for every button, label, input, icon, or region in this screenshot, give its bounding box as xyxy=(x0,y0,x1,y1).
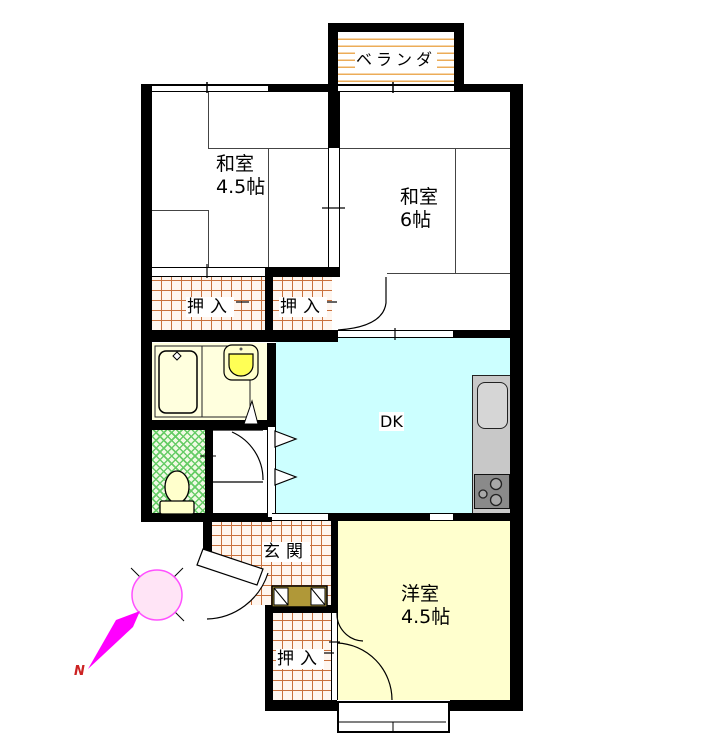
window-tick xyxy=(207,82,393,93)
closet-left-label: 押入 xyxy=(186,292,234,317)
hallway-door xyxy=(200,430,263,482)
closet-right-label: 押入 xyxy=(279,292,327,317)
washitsu-6-label: 和室 6帖 xyxy=(400,186,438,232)
washitsu-6-door xyxy=(338,277,386,330)
washitsu-45-label: 和室 4.5帖 xyxy=(216,153,265,199)
dk-label: DK xyxy=(379,412,404,431)
compass-circle xyxy=(132,570,182,620)
youshitsu-label: 洋室 4.5帖 xyxy=(401,583,450,629)
genkan-label: 玄関 xyxy=(262,537,310,562)
compass-north-arrow xyxy=(88,611,140,669)
compass xyxy=(88,568,184,669)
bathroom-door-wedge xyxy=(244,401,258,424)
toilet-fixture xyxy=(160,471,194,514)
wash-basin xyxy=(224,345,258,380)
bay-window-glass xyxy=(339,722,446,731)
balcony-label: ベランダ xyxy=(338,46,454,70)
floor-plan: ベランダ 和室 4.5帖 和室 6帖 押入 押入 DK 玄関 洋室 4.5帖 押… xyxy=(0,0,716,750)
stove-burners xyxy=(479,479,502,506)
shoe-cabinet xyxy=(272,586,327,607)
closet-bottom-label: 押入 xyxy=(276,644,324,669)
door-direction-arrows xyxy=(275,431,296,485)
entrance-door xyxy=(197,549,268,619)
youshitsu-door xyxy=(337,613,392,700)
compass-north-label: N xyxy=(73,664,86,679)
